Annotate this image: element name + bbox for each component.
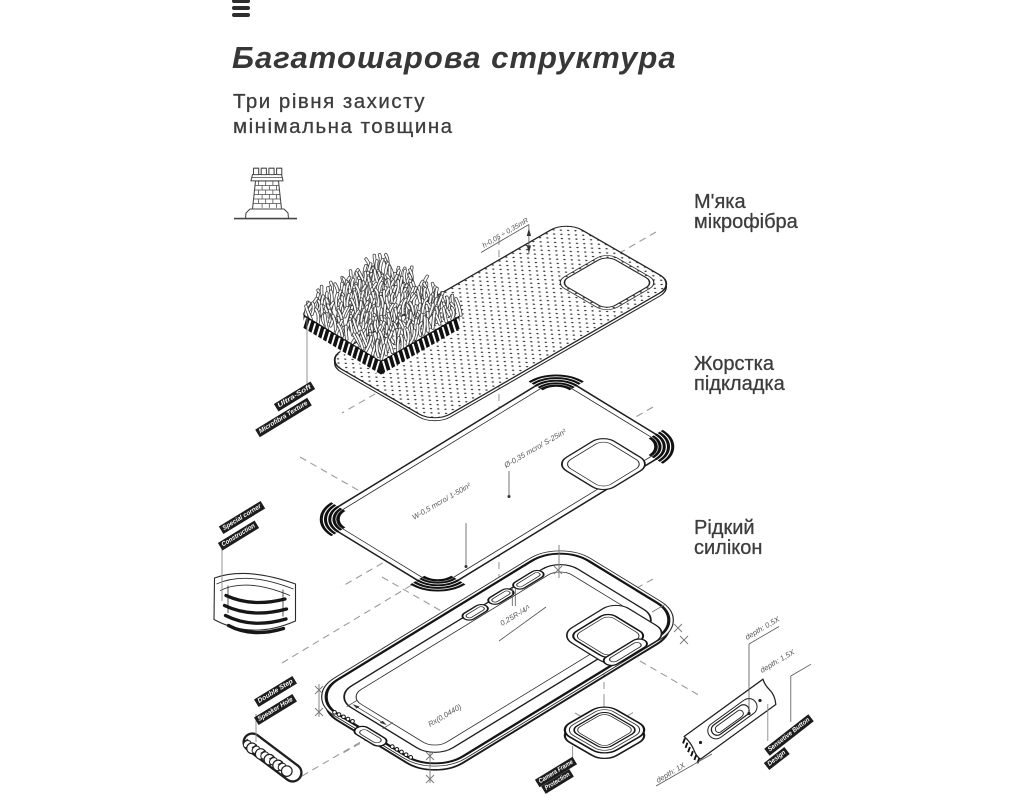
svg-text:depth: 1,5X: depth: 1,5X — [758, 647, 796, 675]
svg-text:depth: 1X: depth: 1X — [654, 760, 687, 785]
svg-text:h-0,05 ÷ 0,35mR: h-0,05 ÷ 0,35mR — [481, 217, 529, 249]
svg-text:Sensetive Button: Sensetive Button — [767, 716, 812, 753]
